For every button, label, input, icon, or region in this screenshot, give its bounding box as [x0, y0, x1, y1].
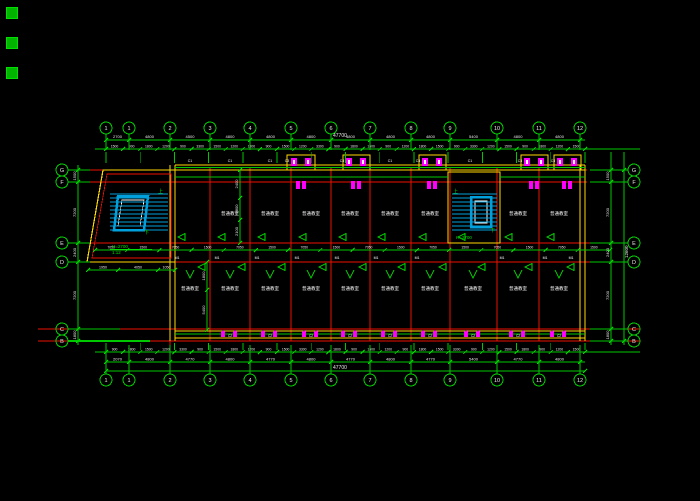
toilet-fixture-inner: [362, 160, 364, 164]
dim-text: 900: [266, 145, 272, 149]
stair-railing-inner: [475, 201, 487, 223]
stair-railing: [114, 196, 148, 230]
axis-bubble-label: E: [632, 241, 636, 247]
toilet-fixture-inner: [526, 160, 528, 164]
window-tag: C2: [268, 334, 272, 338]
dim-text: 1200: [162, 348, 170, 352]
window-tag: C1: [268, 159, 273, 163]
axis-bubble-label: 8: [409, 378, 412, 384]
dim-text: 1950: [99, 266, 107, 270]
dim-text: 1500: [213, 348, 221, 352]
axis-bubble-label: 11: [536, 126, 542, 132]
window-tag: C1: [188, 159, 193, 163]
axis-bubble-label: G: [632, 168, 636, 174]
dim-text: 1200: [556, 145, 564, 149]
door-swing-icon: [419, 234, 426, 241]
dim-text: 4770: [514, 357, 524, 362]
axis-bubble-label: 7: [368, 126, 371, 132]
total-dim-right: 12600: [624, 245, 629, 258]
axis-bubble-label: 1: [127, 126, 130, 132]
dim-text: 1500: [111, 145, 119, 149]
dim-text: 7050: [236, 246, 244, 250]
dim-text: 1500: [605, 171, 610, 181]
door-swing-icon: [238, 264, 245, 271]
door-icon: [535, 181, 539, 189]
total-dim-top: 47700: [333, 133, 347, 139]
layer-swatch-icon: [6, 7, 18, 19]
stair-up-label: 上: [453, 188, 458, 195]
door-icon: [529, 181, 533, 189]
vent-symbol-icon: [386, 270, 394, 278]
axis-bubble-label: 9: [448, 126, 451, 132]
dim-text: 1800: [350, 145, 358, 149]
dim-text: 3300: [470, 145, 478, 149]
axis-bubble-label: 3: [208, 378, 211, 384]
room-label: 普通教室: [261, 285, 279, 292]
dim-text: 1800: [248, 145, 256, 149]
dim-text: 4800: [346, 134, 356, 139]
dim-text: 7200: [605, 207, 610, 217]
room-label: 普通教室: [550, 210, 568, 217]
room-label: 普通教室: [261, 210, 279, 217]
dim-text: 2070: [113, 357, 123, 362]
door-swing-icon: [198, 264, 205, 271]
axis-bubble-label: F: [632, 180, 636, 186]
vent-symbol-icon: [346, 270, 354, 278]
dim-text: 2100: [234, 226, 239, 236]
dim-text: 1500: [397, 246, 405, 250]
axis-bubble-label: D: [60, 260, 64, 266]
dim-text: 2700: [113, 134, 123, 139]
door-swing-icon: [478, 264, 485, 271]
toilet-fixture-inner: [293, 160, 295, 164]
axis-bubble-label: 4: [248, 126, 251, 132]
room-label: 普通教室: [509, 285, 527, 292]
room-label: 普通教室: [381, 210, 399, 217]
stair-down-label: 下: [144, 230, 149, 236]
window-tag: C2: [428, 334, 432, 338]
dim-text: 1500: [140, 246, 148, 250]
door-icon: [357, 181, 361, 189]
dim-text: 1500: [333, 246, 341, 250]
dim-text: 7050: [365, 246, 373, 250]
room-label: 普通教室: [421, 210, 439, 217]
dim-text: 1500: [145, 348, 153, 352]
window-tag: C1: [228, 159, 233, 163]
axis-bubble-label: B: [632, 339, 636, 345]
axis-bubble-label: 1: [127, 378, 130, 384]
grid-lines-red-vertical: [170, 168, 580, 353]
dim-text: 900: [403, 348, 409, 352]
vent-symbol-icon: [307, 270, 315, 278]
dim-text: 4800: [307, 357, 317, 362]
axis-bubble-label: C: [60, 327, 64, 333]
dim-text: 1800: [145, 145, 153, 149]
dim-text: 3300: [316, 145, 324, 149]
window-tag: C2: [309, 334, 313, 338]
dim-text: 1500: [436, 145, 444, 149]
axis-bubble-label: D: [632, 260, 636, 266]
total-dim-bottom: 47700: [333, 365, 347, 371]
axis-bubble-label: 7: [368, 378, 371, 384]
dim-text: 1500: [573, 348, 581, 352]
door-swing-icon: [505, 234, 512, 241]
door-swing-icon: [319, 264, 326, 271]
room-label: 普通教室: [341, 210, 359, 217]
axis-bubble-label: 4: [248, 378, 251, 384]
dim-text: 2400: [234, 179, 239, 189]
dim-text: 900: [454, 145, 460, 149]
window-tag: C2: [348, 334, 352, 338]
toilet-fixture-inner: [540, 160, 542, 164]
dim-text: 4770: [426, 357, 436, 362]
toilet-fixture-inner: [424, 160, 426, 164]
door-tag: M1: [175, 256, 180, 260]
window-tag: C3: [340, 159, 345, 163]
dim-text: 7050: [172, 246, 180, 250]
vent-symbol-icon: [426, 270, 434, 278]
room-label: 普通教室: [341, 285, 359, 292]
dim-text: 900: [197, 348, 203, 352]
dim-text: 5400: [469, 134, 479, 139]
window-tag: C3: [551, 159, 556, 163]
dim-text: 1800: [72, 330, 77, 340]
dim-text: 7050: [429, 246, 437, 250]
toilet-fixture-inner: [438, 160, 440, 164]
dim-text: 7050: [300, 246, 308, 250]
axis-bubble-label: C: [632, 327, 636, 333]
door-swing-icon: [359, 264, 366, 271]
door-swing-icon: [299, 234, 306, 241]
door-swing-icon: [258, 234, 265, 241]
room-label: 普通教室: [421, 285, 439, 292]
dim-text: 1500: [282, 348, 290, 352]
dim-text: 4800: [266, 134, 276, 139]
dim-text: 900: [522, 145, 528, 149]
dim-text: 4770: [186, 357, 196, 362]
room-label: 普通教室: [302, 285, 320, 292]
dim-text: 7200: [72, 290, 77, 300]
axis-bubble-label: B: [60, 339, 64, 345]
dim-text: 4800: [145, 134, 155, 139]
door-swing-icon: [439, 264, 446, 271]
stair-up-label: 上: [158, 188, 163, 195]
axis-bubble-label: 12: [577, 126, 583, 132]
axis-bubble-label: 10: [494, 378, 500, 384]
window-tag: C1: [468, 159, 473, 163]
room-label: 普通教室: [302, 210, 320, 217]
dim-text: 2400: [605, 247, 610, 257]
dim-text: 1500: [282, 145, 290, 149]
layer-swatch-icon: [6, 67, 18, 79]
vent-symbol-icon: [226, 270, 234, 278]
dim-text: 4800: [386, 357, 396, 362]
dim-text: 1800: [231, 348, 239, 352]
dim-text: 900: [385, 145, 391, 149]
dim-text: 900: [471, 348, 477, 352]
dim-text: 1500: [72, 171, 77, 181]
door-tag: M1: [374, 256, 379, 260]
dim-text: 1050: [163, 266, 171, 270]
dim-text: 1500: [461, 246, 469, 250]
dim-text: 1500: [204, 246, 212, 250]
dim-text: 900: [180, 145, 186, 149]
door-icon: [296, 181, 300, 189]
dim-text: 7050: [558, 246, 566, 250]
dim-text: 1200: [316, 348, 324, 352]
dim-text: 2400: [72, 247, 77, 257]
door-icon: [568, 181, 572, 189]
axis-bubble-label: 3: [208, 126, 211, 132]
door-tag: M1: [415, 256, 420, 260]
dim-text: 900: [334, 145, 340, 149]
dim-text: 1500: [504, 145, 512, 149]
window-tag: C2: [228, 334, 232, 338]
dim-text: 7050: [494, 246, 502, 250]
dim-text: 1200: [384, 348, 392, 352]
door-swing-icon: [525, 264, 532, 271]
dim-text: 1200: [162, 145, 170, 149]
stair-note: H=2700: [456, 235, 472, 240]
dim-text: 7200: [605, 290, 610, 300]
dim-text: 900: [129, 145, 135, 149]
dim-text: 4800: [145, 357, 155, 362]
dim-text: 1200: [231, 145, 239, 149]
toilet-fixture-inner: [348, 160, 350, 164]
door-swing-icon: [547, 234, 554, 241]
axis-bubble-label: 5: [289, 378, 292, 384]
room-label: 普通教室: [221, 210, 239, 217]
door-swing-icon: [398, 264, 405, 271]
window-tag: C2: [471, 334, 475, 338]
dim-text: 1500: [367, 145, 375, 149]
dim-text: 1200: [487, 348, 495, 352]
dim-text: 4800: [307, 134, 317, 139]
door-tag: M1: [295, 256, 300, 260]
dim-text: 1200: [487, 145, 495, 149]
dim-text: 1800: [605, 330, 610, 340]
window-tag: C3: [285, 159, 290, 163]
dim-text: 1500: [367, 348, 375, 352]
room-label: 普通教室: [550, 285, 568, 292]
door-swing-icon: [378, 234, 385, 241]
vent-symbol-icon: [186, 270, 194, 278]
dim-text: 4800: [426, 134, 436, 139]
dim-text: 3300: [453, 348, 461, 352]
stairwell-left-inner: [92, 174, 171, 258]
axis-bubble-label: 9: [448, 378, 451, 384]
dim-text: 4050: [134, 266, 142, 270]
dim-text: 4800: [226, 357, 236, 362]
dim-text: 7200: [72, 207, 77, 217]
axis-bubble-label: 12: [577, 378, 583, 384]
dim-text: 5400: [201, 305, 206, 315]
dim-text: 4800: [514, 134, 524, 139]
dim-text: 900: [351, 348, 357, 352]
axis-bubble-label: 2: [168, 126, 171, 132]
door-swing-icon: [178, 234, 185, 241]
dim-text: 4800: [386, 134, 396, 139]
room-label: 普通教室: [464, 285, 482, 292]
dim-text: 1500: [590, 246, 598, 250]
dim-text: 4800: [226, 134, 236, 139]
dim-text: 4770: [266, 357, 276, 362]
vent-symbol-icon: [555, 270, 563, 278]
dim-text: 3300: [299, 348, 307, 352]
door-swing-icon: [218, 234, 225, 241]
door-swing-icon: [278, 264, 285, 271]
window-tag: C3: [416, 159, 421, 163]
window-tag: C2: [388, 334, 392, 338]
axis-bubble-label: 6: [329, 378, 332, 384]
window-tag: C2: [516, 334, 520, 338]
door-swing-icon: [567, 264, 574, 271]
toilet-fixture-inner: [307, 160, 309, 164]
dim-text: 1500: [436, 348, 444, 352]
cad-drawing-canvas[interactable]: 2700480045004800480048004800480048005400…: [0, 0, 700, 501]
dim-text: 3300: [179, 348, 187, 352]
door-tag: M1: [569, 256, 574, 260]
dim-text: 4800: [555, 357, 565, 362]
dim-text: 1800: [201, 271, 206, 281]
dim-text: 1500: [213, 145, 221, 149]
door-tag: M1: [335, 256, 340, 260]
vent-symbol-icon: [514, 270, 522, 278]
axis-bubble-label: F: [60, 180, 64, 186]
room-label: 普通教室: [221, 285, 239, 292]
ramp-note: 1:12: [112, 250, 121, 255]
dim-text: 1800: [333, 348, 341, 352]
axis-bubble-label: 8: [409, 126, 412, 132]
window-tag: C1: [388, 159, 393, 163]
axis-bubble-label: E: [60, 241, 64, 247]
dim-text: 1800: [521, 348, 529, 352]
dimension-lines: [78, 140, 640, 371]
axis-bubble-label: 11: [536, 378, 542, 384]
window-tag: C3: [518, 159, 523, 163]
door-icon: [433, 181, 437, 189]
door-icon: [302, 181, 306, 189]
axis-bubble-label: 2: [168, 378, 171, 384]
dim-text: 1200: [402, 145, 410, 149]
axis-bubble-label: G: [60, 168, 64, 174]
dim-text: 1200: [556, 348, 564, 352]
toilet-fixture-inner: [573, 160, 575, 164]
door-swing-icon: [339, 234, 346, 241]
dim-text: 5400: [469, 357, 479, 362]
vent-symbol-icon: [266, 270, 274, 278]
vent-symbol-icon: [469, 270, 477, 278]
door-tag: M1: [255, 256, 260, 260]
dim-text: 1800: [419, 348, 427, 352]
dim-text: 4770: [346, 357, 356, 362]
floor-plan-svg: 2700480045004800480048004800480048005400…: [0, 0, 700, 501]
axis-bubble-label: 1: [104, 378, 107, 384]
door-tag: M1: [500, 256, 505, 260]
dim-text: 900: [112, 348, 118, 352]
axis-bubble-label: 1: [104, 126, 107, 132]
stair-down-label: 下: [490, 228, 495, 234]
dim-text: 4500: [186, 134, 196, 139]
dim-text: 1500: [504, 348, 512, 352]
dim-text: 1500: [573, 145, 581, 149]
layer-swatch-icon: [6, 37, 18, 49]
door-tag: M1: [543, 256, 548, 260]
window-tag: C2: [557, 334, 561, 338]
toilet-fixture-inner: [559, 160, 561, 164]
dim-text: 1500: [526, 246, 534, 250]
dim-text: 1500: [268, 246, 276, 250]
dim-text: 1800: [538, 145, 546, 149]
stair-note: H=2700: [112, 244, 128, 249]
room-label: 普通教室: [181, 285, 199, 292]
axis-bubble-label: 5: [289, 126, 292, 132]
dim-text: 1200: [248, 348, 256, 352]
door-icon: [562, 181, 566, 189]
dim-text: 3300: [196, 145, 204, 149]
dim-text: 4800: [555, 134, 565, 139]
door-icon: [427, 181, 431, 189]
stairwell-left-wall: [87, 170, 175, 262]
axis-bubble-label: 10: [494, 126, 500, 132]
door-icon: [351, 181, 355, 189]
door-tag: M1: [215, 256, 220, 260]
dim-text: 1800: [419, 145, 427, 149]
dim-text: 900: [539, 348, 545, 352]
dim-text: 1200: [299, 145, 307, 149]
room-label: 普通教室: [509, 210, 527, 217]
room-label: 普通教室: [381, 285, 399, 292]
dim-text: 900: [266, 348, 272, 352]
axis-bubble-label: 6: [329, 126, 332, 132]
